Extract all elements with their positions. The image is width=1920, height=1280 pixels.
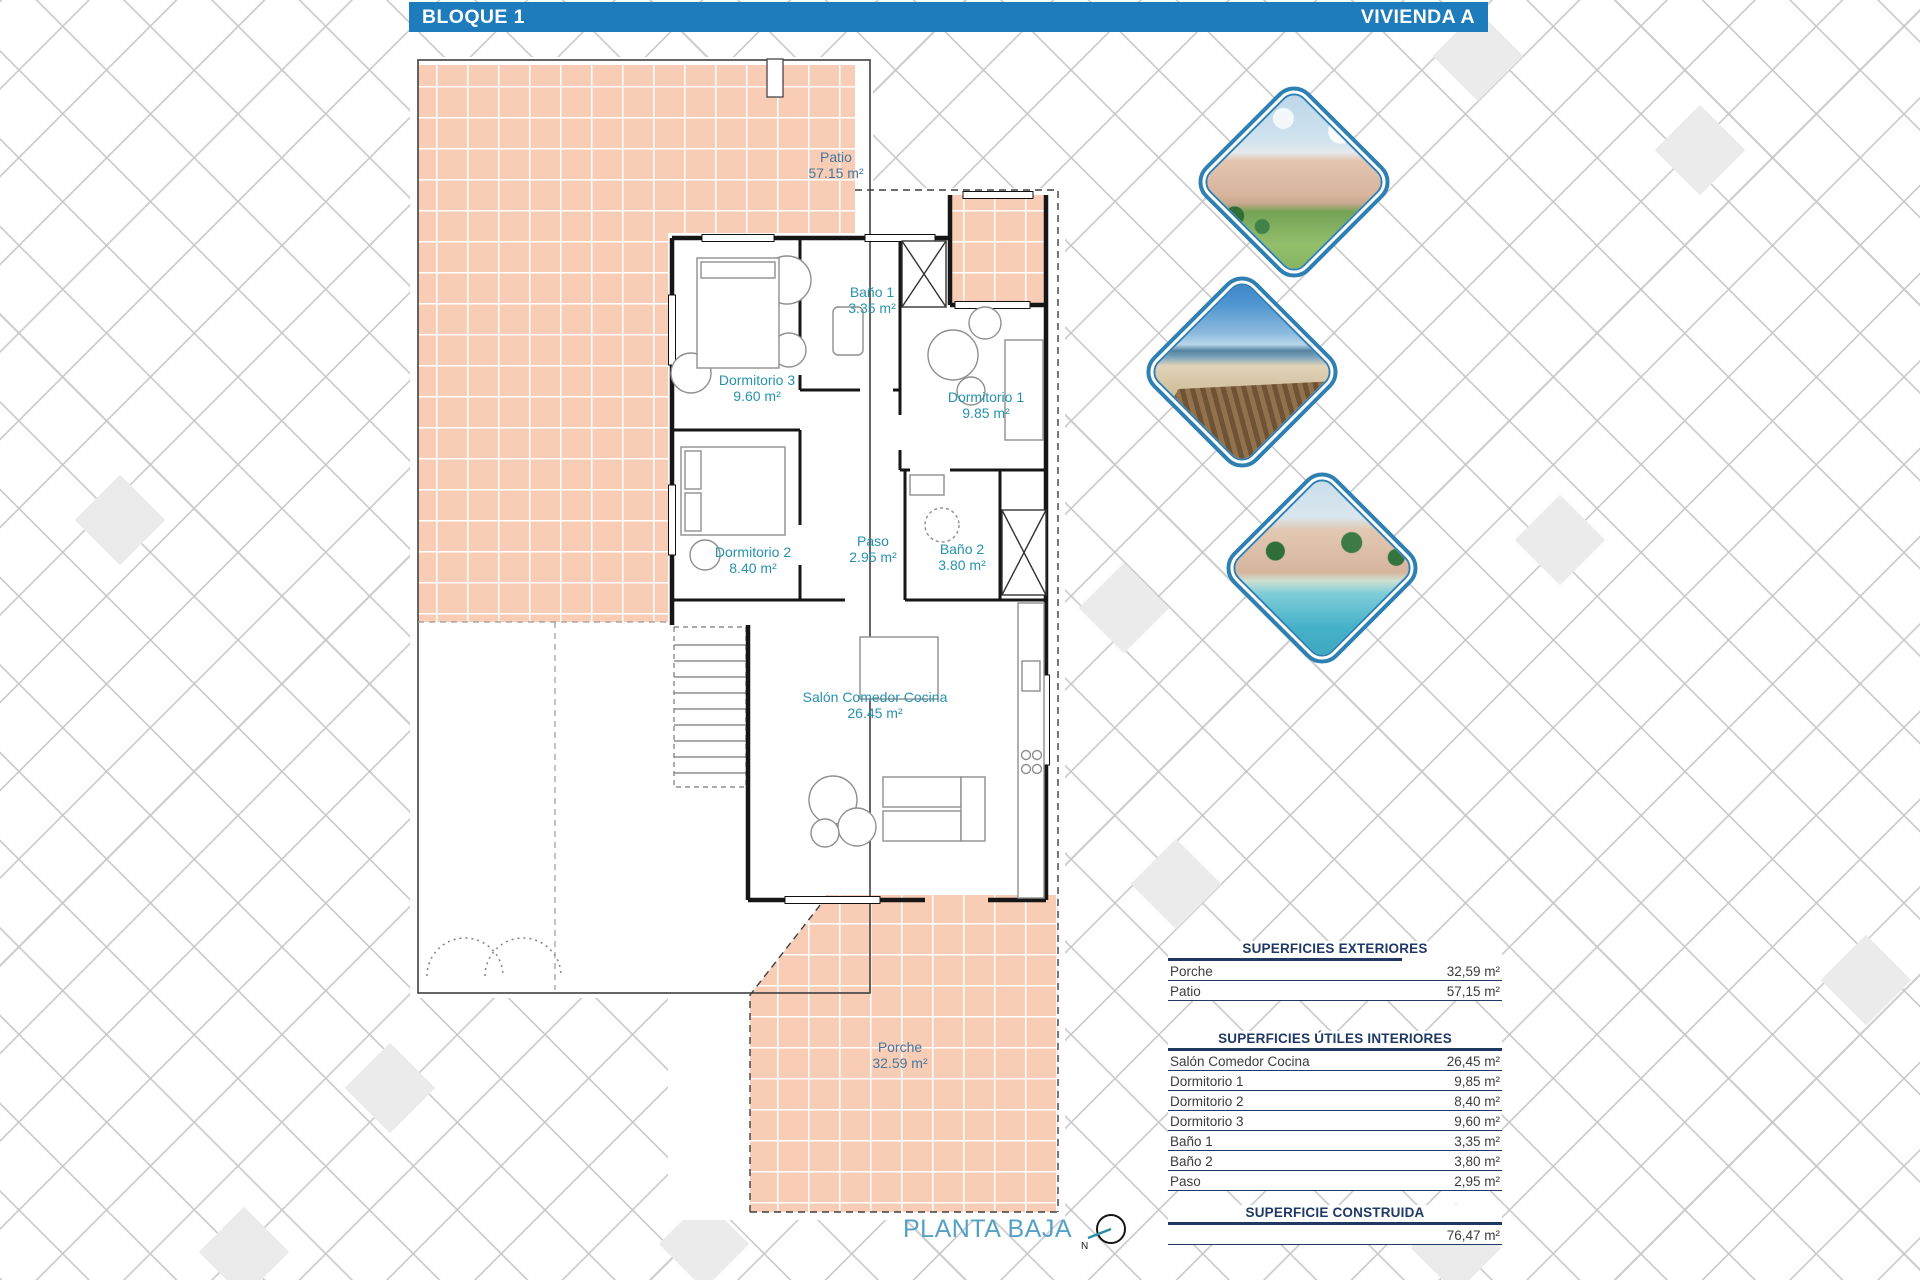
row-label: Salón Comedor Cocina (1170, 1054, 1310, 1069)
row-value: 9,60 m² (1454, 1114, 1500, 1129)
pool-photo (1227, 473, 1417, 663)
table-row: 76,47 m² (1168, 1225, 1502, 1245)
photo-resort-diamond (1189, 77, 1398, 286)
row-label: Paso (1170, 1174, 1201, 1189)
floor-plan-drawing: Patio 57.15 m² Porche 32.59 m² Dormitori… (405, 55, 1065, 1220)
porche-area: 32.59 m² (872, 1055, 928, 1071)
table-title: SUPERFICIES ÚTILES INTERIORES (1168, 1031, 1502, 1048)
table-row: Dormitorio 3 9,60 m² (1168, 1111, 1502, 1131)
row-label: Dormitorio 3 (1170, 1114, 1244, 1129)
bano2-area: 3.80 m² (938, 557, 986, 573)
table-title: SUPERFICIES EXTERIORES (1168, 941, 1502, 958)
row-value: 26,45 m² (1447, 1054, 1500, 1069)
photo-frame (1147, 277, 1337, 467)
table-row: Porche 32,59 m² (1168, 961, 1502, 981)
row-value: 2,95 m² (1454, 1174, 1500, 1189)
resort-photo (1199, 87, 1389, 277)
row-label: Dormitorio 1 (1170, 1074, 1244, 1089)
salon-label: Salón Comedor Cocina (803, 689, 948, 705)
porche-label: Porche (878, 1039, 923, 1055)
lattice-shaded-cell (199, 1207, 290, 1280)
photo-frame (1227, 473, 1417, 663)
built-surface-table: SUPERFICIE CONSTRUIDA 76,47 m² (1168, 1205, 1502, 1245)
lattice-shaded-cell (75, 475, 166, 566)
bano1-label: Baño 1 (850, 284, 895, 300)
north-label: N (1081, 1241, 1088, 1252)
row-value: 9,85 m² (1454, 1074, 1500, 1089)
paso-area: 2.95 m² (849, 549, 897, 565)
lattice-shaded-cell (1655, 105, 1746, 196)
block-title: BLOQUE 1 (422, 6, 525, 29)
dormitorio1-label: Dormitorio 1 (948, 389, 1024, 405)
row-value: 3,80 m² (1454, 1154, 1500, 1169)
dormitorio2-label: Dormitorio 2 (715, 544, 791, 560)
table-row: Baño 1 3,35 m² (1168, 1131, 1502, 1151)
interior-surfaces-table: SUPERFICIES ÚTILES INTERIORES Salón Come… (1168, 1031, 1502, 1191)
salon-area: 26.45 m² (847, 705, 903, 721)
row-label: Patio (1170, 984, 1201, 999)
header-bar: BLOQUE 1 VIVIENDA A (409, 2, 1488, 32)
patio-tiles-top (418, 65, 855, 233)
bano1-area: 3.35 m² (848, 300, 896, 316)
lattice-shaded-cell (1079, 563, 1170, 654)
table-row: Salón Comedor Cocina 26,45 m² (1168, 1051, 1502, 1071)
dormitorio3-area: 9.60 m² (733, 388, 781, 404)
table-row: Baño 2 3,80 m² (1168, 1151, 1502, 1171)
photo-beach-diamond (1137, 267, 1346, 476)
table-row: Dormitorio 2 8,40 m² (1168, 1091, 1502, 1111)
row-label: Baño 1 (1170, 1134, 1213, 1149)
table-title: SUPERFICIE CONSTRUIDA (1168, 1205, 1502, 1222)
row-label: Dormitorio 2 (1170, 1094, 1244, 1109)
table-row: Paso 2,95 m² (1168, 1171, 1502, 1191)
bano2-label: Baño 2 (940, 541, 985, 557)
paso-label: Paso (857, 533, 889, 549)
dormitorio2-area: 8.40 m² (729, 560, 777, 576)
lattice-shaded-cell (1131, 839, 1222, 930)
lattice-shaded-cell (1515, 495, 1606, 586)
north-compass-icon: N (1080, 1208, 1132, 1254)
beach-photo (1147, 277, 1337, 467)
vent-shaft (767, 59, 783, 97)
floor-plan-page: BLOQUE 1 VIVIENDA A (0, 0, 1920, 1280)
patio-tiles-notch (950, 195, 1046, 305)
table-row: Patio 57,15 m² (1168, 981, 1502, 1001)
lattice-shaded-cell (1821, 935, 1912, 1026)
photo-frame (1199, 87, 1389, 277)
photo-pool-diamond (1217, 463, 1426, 672)
dormitorio3-label: Dormitorio 3 (719, 372, 795, 388)
row-label: Porche (1170, 964, 1213, 979)
dwelling-title: VIVIENDA A (1361, 6, 1475, 29)
row-label: Baño 2 (1170, 1154, 1213, 1169)
patio-tiles-side (418, 233, 668, 622)
row-value: 32,59 m² (1447, 964, 1500, 979)
row-value: 8,40 m² (1454, 1094, 1500, 1109)
row-value: 57,15 m² (1447, 984, 1500, 999)
dormitorio1-area: 9.85 m² (962, 405, 1010, 421)
table-row: Dormitorio 1 9,85 m² (1168, 1071, 1502, 1091)
patio-label: Patio (820, 149, 852, 165)
patio-area: 57.15 m² (808, 165, 864, 181)
plan-caption: PLANTA BAJA (903, 1215, 1072, 1244)
row-value: 76,47 m² (1447, 1228, 1500, 1243)
exterior-surfaces-table: SUPERFICIES EXTERIORES Porche 32,59 m² P… (1168, 941, 1502, 1001)
row-value: 3,35 m² (1454, 1134, 1500, 1149)
